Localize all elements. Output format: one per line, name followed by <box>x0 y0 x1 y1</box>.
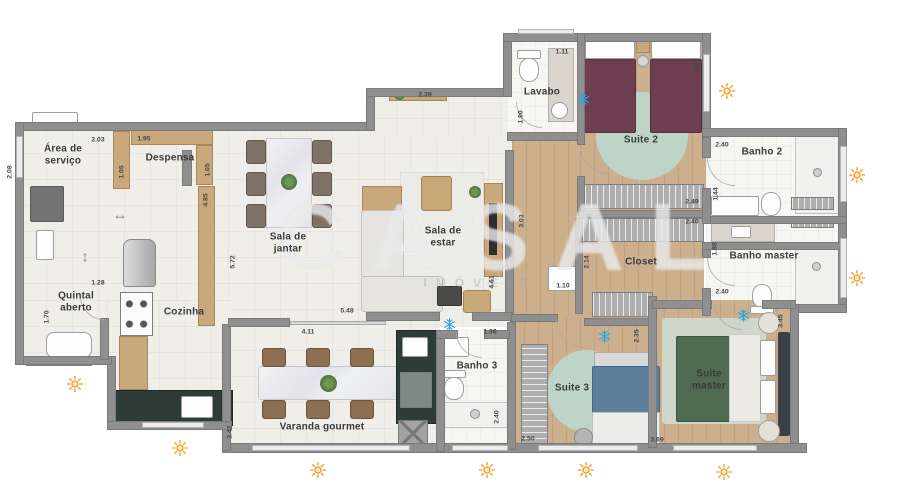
dimension-label: 2.42 <box>227 425 234 438</box>
dimension-label: 1.10 <box>556 283 569 290</box>
circulation-arrow: ↔ <box>113 207 128 224</box>
dimension-label: 3.69 <box>650 437 663 444</box>
room-label-lavabo: Lavabo <box>524 86 560 98</box>
dimension-label: 5.72 <box>230 255 237 268</box>
dimension-label: 1.36 <box>483 329 496 336</box>
dimension-label: 4.61 <box>489 275 496 288</box>
room-label-quintal-aberto: Quintal aberto <box>58 291 94 314</box>
room-label-suite-2: Suite 2 <box>624 134 658 146</box>
dimension-label: 2.03 <box>91 137 104 144</box>
room-label-despensa: Despensa <box>146 152 195 164</box>
circulation-arrow: ↕ <box>81 249 89 266</box>
dimension-label: 2.08 <box>7 165 14 178</box>
dimension-label: 1.05 <box>205 163 212 176</box>
dimension-label: 3.03 <box>519 214 526 227</box>
room-label-area-servico: Área de serviço <box>44 144 82 167</box>
dimension-label: 1.88 <box>712 242 719 255</box>
circulation-arrow: ↔ <box>219 345 234 362</box>
dimension-label: 1.95 <box>137 136 150 143</box>
dimension-label: 3.53 <box>694 59 701 72</box>
room-label-banho-master: Banho master <box>729 250 798 262</box>
dimension-label: 5.48 <box>340 308 353 315</box>
apartment-floor-plan: CASAL IMÓVEIS Área de serviçoDespensaQui… <box>0 0 900 493</box>
room-label-suite-3: Suite 3 <box>555 382 589 394</box>
dimension-label: 1.28 <box>91 280 104 287</box>
room-label-cozinha: Cozinha <box>164 306 204 318</box>
dimension-label: 2.50 <box>521 436 534 443</box>
dimension-label: 1.05 <box>119 165 126 178</box>
dimension-label: 2.14 <box>584 255 591 268</box>
dimension-label: 1.44 <box>713 187 720 200</box>
room-label-suite-master: Suite master <box>692 369 726 392</box>
dimension-label: 4.11 <box>302 329 315 336</box>
dimension-label: 2.39 <box>418 92 431 99</box>
room-label-banho-3: Banho 3 <box>457 360 498 372</box>
dimension-label: 2.40 <box>494 410 501 423</box>
dimension-label: 2.35 <box>634 329 641 342</box>
dimension-label: 1.70 <box>44 310 51 323</box>
room-label-sala-de-jantar: Sala de jantar <box>270 232 306 255</box>
dimension-label: 4.85 <box>203 193 210 206</box>
dimension-label: 2.49 <box>685 199 698 206</box>
annotation-layer: Área de serviçoDespensaQuintal abertoCoz… <box>0 0 900 493</box>
room-label-banho-2: Banho 2 <box>742 146 783 158</box>
room-label-sala-de-estar: Sala de estar <box>425 226 461 249</box>
room-label-closet: Closet <box>625 256 657 268</box>
dimension-label: 2.40 <box>715 289 728 296</box>
dimension-label: 1.11 <box>556 49 569 56</box>
room-label-varanda-gourmet: Varanda gourmet <box>280 421 365 433</box>
dimension-label: 1.80 <box>518 110 525 123</box>
dimension-label: 2.40 <box>715 142 728 149</box>
circulation-arrow: ↕ <box>284 313 292 330</box>
dimension-label: 3.45 <box>778 314 785 327</box>
dimension-label: 2.40 <box>685 219 698 226</box>
